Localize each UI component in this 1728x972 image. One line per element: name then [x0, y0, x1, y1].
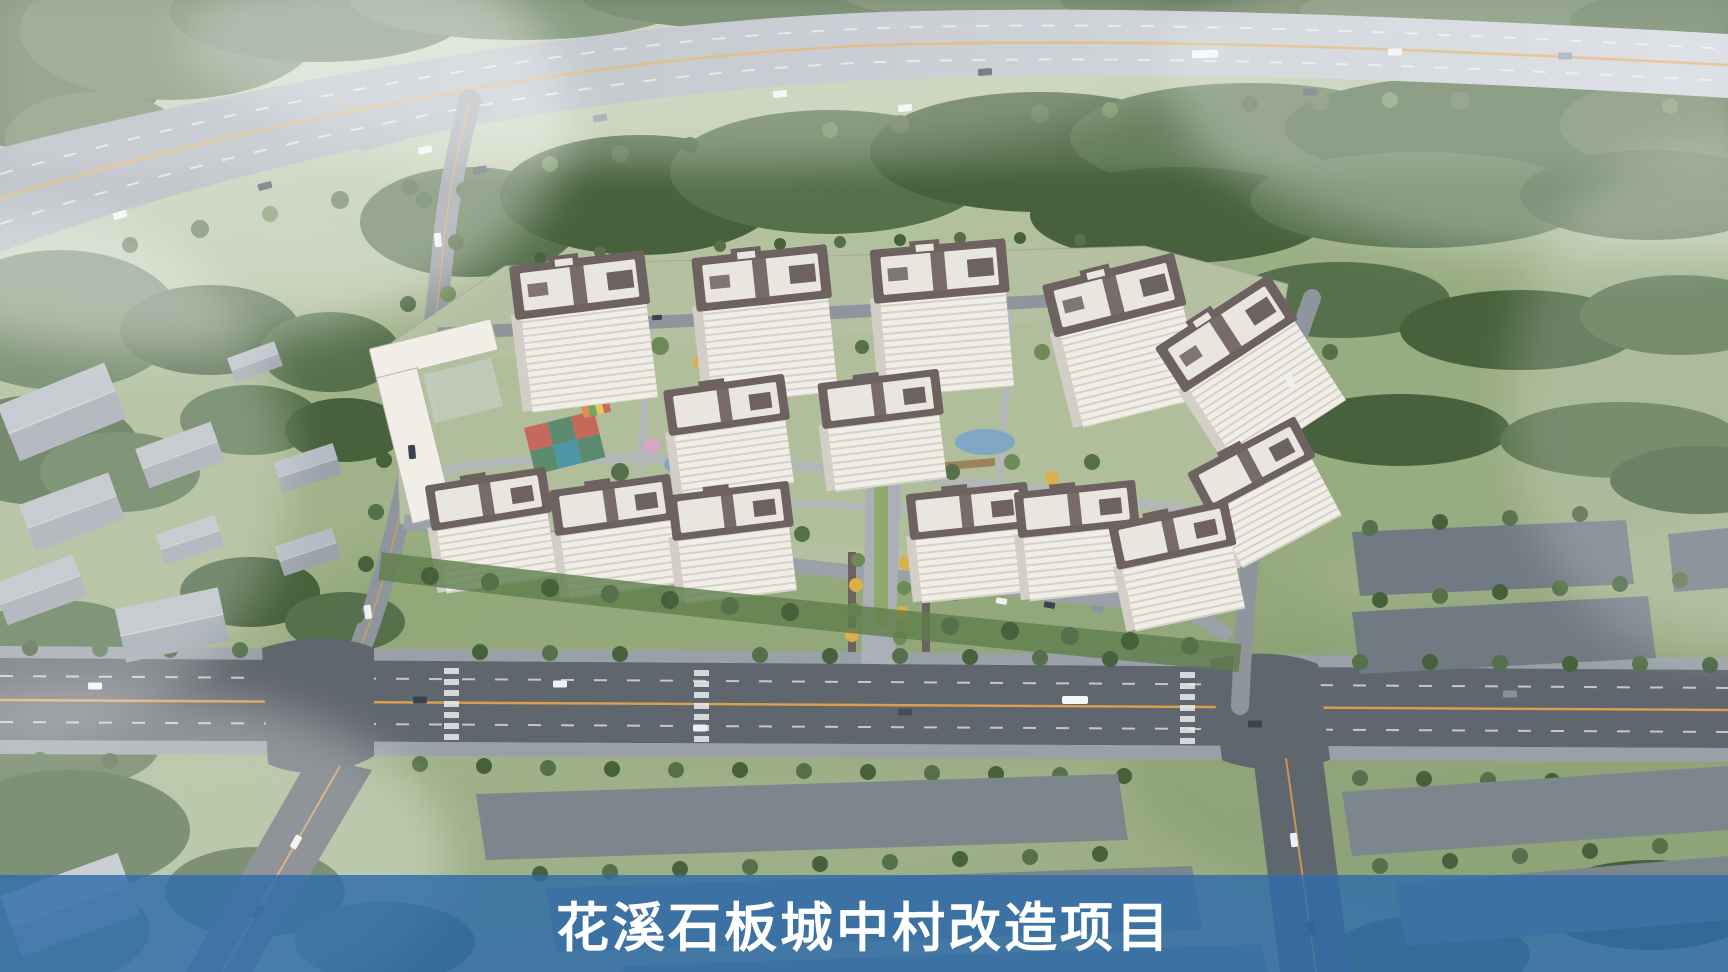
tower — [663, 477, 802, 606]
tower — [865, 233, 1018, 398]
scene-svg — [0, 0, 1728, 972]
aerial-render: 花溪石板城中村改造项目 — [0, 0, 1728, 972]
tower — [658, 370, 799, 500]
title-banner: 花溪石板城中村改造项目 — [0, 875, 1728, 972]
project-title: 花溪石板城中村改造项目 — [0, 875, 1728, 972]
tower — [813, 365, 952, 494]
tower — [504, 245, 662, 414]
pond — [955, 429, 1015, 455]
